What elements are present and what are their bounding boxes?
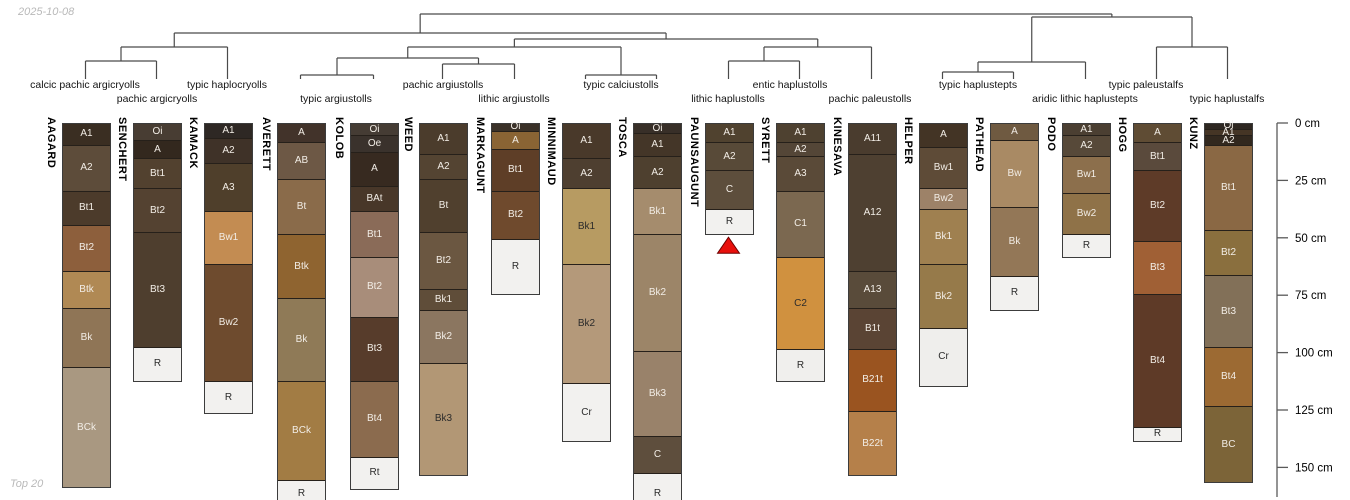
taxon-label: calcic pachic argicryolls (30, 79, 140, 91)
horizon-label: Bt3 (1221, 307, 1236, 317)
horizon-kinesava-b21t: B21t (849, 349, 896, 411)
taxon-label: pachic argiustolls (403, 79, 484, 91)
profile-column-hogg: ABt1Bt2Bt3Bt4R (1133, 123, 1182, 442)
profile-name-syrett: SYRETT (759, 117, 771, 163)
horizon-label: C1 (794, 219, 807, 229)
horizon-weed-bk2: Bk2 (420, 310, 467, 363)
depth-axis-tick-label: 25 cm (1295, 175, 1326, 187)
horizon-aagard-bck: BCk (63, 367, 110, 486)
horizon-aagard-a1: A1 (63, 124, 110, 145)
horizon-minnimaud-cr: Cr (563, 383, 610, 440)
profile-column-helper: ABw1Bw2Bk1Bk2Cr (919, 123, 968, 387)
profile-column-senchert: OiABt1Bt2Bt3R (133, 123, 182, 382)
horizon-markagunt-r: R (492, 239, 539, 294)
horizon-averett-a: A (278, 124, 325, 142)
horizon-kunz-bt4: Bt4 (1205, 347, 1252, 407)
profile-column-kamack: A1A2A3Bw1Bw2R (204, 123, 253, 414)
horizon-label: Cr (581, 408, 592, 418)
horizon-label: Bk3 (435, 414, 452, 424)
profile-name-minnimaud: MINNIMAUD (545, 117, 557, 186)
horizon-kolob-bt4: Bt4 (351, 381, 398, 457)
horizon-tosca-a1: A1 (634, 133, 681, 156)
horizon-label: A2 (794, 145, 806, 155)
horizon-label: Btk (79, 285, 93, 295)
profile-name-paunsaugunt: PAUNSAUGUNT (688, 117, 700, 207)
horizon-syrett-c2: C2 (777, 257, 824, 349)
horizon-label: Bt4 (367, 414, 382, 424)
profile-name-helper: HELPER (902, 117, 914, 165)
horizon-kamack-bw2: Bw2 (205, 264, 252, 381)
depth-axis-tick-label: 100 cm (1295, 348, 1333, 360)
horizon-minnimaud-a1: A1 (563, 124, 610, 158)
horizon-label: Rt (370, 468, 380, 478)
taxon-label: typic paleustalfs (1109, 79, 1184, 91)
horizon-label: A2 (222, 146, 234, 156)
taxon-label: typic haplustepts (939, 79, 1017, 91)
horizon-weed-bk1: Bk1 (420, 289, 467, 310)
taxon-label: entic haplustolls (753, 79, 828, 91)
horizon-label: A (298, 128, 305, 138)
horizon-kamack-r: R (205, 381, 252, 413)
horizon-tosca-c: C (634, 436, 681, 473)
horizon-label: Bt2 (367, 282, 382, 292)
horizon-label: Bk (81, 333, 93, 343)
profile-column-tosca: OiA1A2Bk1Bk2Bk3CR (633, 123, 682, 500)
horizon-weed-a1: A1 (420, 124, 467, 154)
horizon-paunsaugunt-a2: A2 (706, 142, 753, 170)
horizon-label: Bt2 (1150, 201, 1165, 211)
horizon-label: A2 (651, 168, 663, 178)
horizon-paunsaugunt-c: C (706, 170, 753, 209)
horizon-kunz-a2: A2 (1205, 135, 1252, 144)
horizon-averett-btk: Btk (278, 234, 325, 298)
horizon-label: Bk2 (649, 288, 666, 298)
horizon-podo-bw1: Bw1 (1063, 156, 1110, 193)
horizon-label: Bt2 (1221, 248, 1236, 258)
horizon-label: A (1154, 128, 1161, 138)
horizon-helper-bw2: Bw2 (920, 188, 967, 209)
horizon-label: A2 (723, 152, 735, 162)
horizon-label: Btk (294, 262, 308, 272)
horizon-label: Bt (297, 202, 306, 212)
horizon-label: Bw (1008, 169, 1022, 179)
horizon-kunz-bt2: Bt2 (1205, 230, 1252, 276)
horizon-label: A12 (864, 208, 882, 218)
horizon-paunsaugunt-a1: A1 (706, 124, 753, 142)
taxon-label: lithic argiustolls (478, 93, 549, 105)
horizon-label: Bt1 (79, 203, 94, 213)
horizon-tosca-a2: A2 (634, 156, 681, 188)
horizon-label: Bt1 (508, 165, 523, 175)
profile-name-senchert: SENCHERT (116, 117, 128, 182)
horizon-kunz-bt3: Bt3 (1205, 275, 1252, 346)
horizon-podo-a2: A2 (1063, 135, 1110, 156)
horizon-label: Bk1 (578, 222, 595, 232)
horizon-label: R (1083, 241, 1090, 251)
horizon-minnimaud-bk1: Bk1 (563, 188, 610, 264)
horizon-pathead-r: R (991, 276, 1038, 310)
profile-column-minnimaud: A1A2Bk1Bk2Cr (562, 123, 611, 442)
horizon-label: Bw2 (1077, 209, 1096, 219)
horizon-senchert-bt3: Bt3 (134, 232, 181, 347)
horizon-helper-cr: Cr (920, 328, 967, 385)
horizon-label: Bt1 (150, 169, 165, 179)
horizon-minnimaud-a2: A2 (563, 158, 610, 188)
horizon-kinesava-a13: A13 (849, 271, 896, 308)
profile-name-hogg: HOGG (1116, 117, 1128, 153)
profile-column-syrett: A1A2A3C1C2R (776, 123, 825, 382)
horizon-syrett-r: R (777, 349, 824, 381)
horizon-weed-bt: Bt (420, 179, 467, 232)
horizon-label: AB (295, 156, 308, 166)
horizon-label: Bt4 (1221, 372, 1236, 382)
horizon-label: A1 (651, 140, 663, 150)
horizon-averett-bt: Bt (278, 179, 325, 234)
profile-name-tosca: TOSCA (616, 117, 628, 158)
horizon-kinesava-b1t: B1t (849, 308, 896, 349)
horizon-kunz-bc: BC (1205, 406, 1252, 482)
horizon-kolob-bt3: Bt3 (351, 317, 398, 381)
horizon-label: BCk (292, 426, 311, 436)
horizon-label: A1 (1080, 125, 1092, 135)
horizon-label: A (1011, 127, 1018, 137)
horizon-label: Bk2 (435, 332, 452, 342)
horizon-label: B1t (865, 324, 880, 334)
horizon-helper-bk2: Bk2 (920, 264, 967, 328)
horizon-tosca-bk2: Bk2 (634, 234, 681, 351)
horizon-label: Bt2 (150, 206, 165, 216)
horizon-label: BAt (366, 194, 382, 204)
horizon-senchert-bt1: Bt1 (134, 158, 181, 188)
horizon-senchert-a: A (134, 140, 181, 158)
horizon-label: Oe (368, 139, 381, 149)
horizon-paunsaugunt-r: R (706, 209, 753, 234)
horizon-label: Oi (153, 127, 163, 137)
horizon-label: A (154, 145, 161, 155)
horizon-label: Bt2 (79, 243, 94, 253)
horizon-label: Bk1 (935, 232, 952, 242)
horizon-senchert-bt2: Bt2 (134, 188, 181, 232)
horizon-kolob-bt1: Bt1 (351, 211, 398, 257)
horizon-label: A1 (794, 128, 806, 138)
horizon-label: A (512, 136, 519, 146)
horizon-aagard-a2: A2 (63, 145, 110, 191)
profile-name-weed: WEED (402, 117, 414, 152)
horizon-label: A13 (864, 285, 882, 295)
horizon-label: Bt3 (150, 285, 165, 295)
horizon-kolob-a: A (351, 152, 398, 186)
horizon-pathead-bk: Bk (991, 207, 1038, 276)
depth-axis-tick-label: 125 cm (1295, 405, 1333, 417)
horizon-podo-a1: A1 (1063, 124, 1110, 135)
horizon-label: Bt1 (1150, 152, 1165, 162)
horizon-label: B21t (862, 375, 883, 385)
horizon-label: B22t (862, 439, 883, 449)
horizon-label: Bk (296, 335, 308, 345)
horizon-kunz-bt1: Bt1 (1205, 145, 1252, 230)
horizon-label: Bw2 (934, 194, 953, 204)
horizon-tosca-oi: Oi (634, 124, 681, 133)
profile-name-podo: PODO (1045, 117, 1057, 151)
horizon-label: A1 (580, 136, 592, 146)
horizon-label: Bw1 (934, 163, 953, 173)
horizon-averett-bck: BCk (278, 381, 325, 480)
horizon-label: Bk (1009, 237, 1021, 247)
horizon-label: Bw1 (219, 233, 238, 243)
horizon-hogg-r: R (1134, 427, 1181, 441)
horizon-kamack-a1: A1 (205, 124, 252, 138)
horizon-label: A1 (222, 126, 234, 136)
profile-column-markagunt: OiABt1Bt2R (491, 123, 540, 295)
horizon-kolob-bat: BAt (351, 186, 398, 211)
profile-column-aagard: A1A2Bt1Bt2BtkBkBCk (62, 123, 111, 488)
depth-axis-tick-label: 150 cm (1295, 462, 1333, 474)
taxon-label: typic haplocryolls (187, 79, 267, 91)
horizon-label: Cr (938, 352, 949, 362)
depth-axis-tick-label: 50 cm (1295, 233, 1326, 245)
horizon-label: A2 (1080, 141, 1092, 151)
horizon-aagard-bt2: Bt2 (63, 225, 110, 271)
horizon-syrett-c1: C1 (777, 191, 824, 258)
horizon-label: R (512, 262, 519, 272)
horizon-label: A (371, 164, 378, 174)
horizon-kinesava-a11: A11 (849, 124, 896, 154)
horizon-aagard-bt1: Bt1 (63, 191, 110, 225)
horizon-label: A2 (437, 162, 449, 172)
horizon-label: Bk1 (435, 295, 452, 305)
horizon-label: Bt2 (436, 256, 451, 266)
horizon-label: A3 (794, 169, 806, 179)
horizon-kinesava-a12: A12 (849, 154, 896, 271)
horizon-weed-a2: A2 (420, 154, 467, 179)
horizon-podo-r: R (1063, 234, 1110, 257)
horizon-label: A1 (437, 134, 449, 144)
horizon-kamack-a3: A3 (205, 163, 252, 211)
horizon-label: R (1154, 429, 1161, 439)
profile-column-kolob: OiOeABAtBt1Bt2Bt3Bt4Rt (350, 123, 399, 490)
horizon-label: A3 (222, 183, 234, 193)
profile-name-averett: AVERETT (260, 117, 272, 171)
taxon-label: lithic haplustolls (691, 93, 765, 105)
profile-name-kinesava: KINESAVA (831, 117, 843, 176)
horizon-hogg-bt2: Bt2 (1134, 170, 1181, 241)
horizon-label: Bt1 (367, 230, 382, 240)
horizon-label: C (654, 450, 661, 460)
horizon-hogg-a: A (1134, 124, 1181, 142)
horizon-label: Bw1 (1077, 170, 1096, 180)
horizon-kamack-bw1: Bw1 (205, 211, 252, 264)
horizon-label: BCk (77, 423, 96, 433)
horizon-markagunt-bt1: Bt1 (492, 149, 539, 190)
horizon-label: Bt1 (1221, 183, 1236, 193)
horizon-label: Bk2 (578, 319, 595, 329)
horizon-pathead-a: A (991, 124, 1038, 140)
horizon-label: R (154, 359, 161, 369)
horizon-aagard-btk: Btk (63, 271, 110, 308)
profile-column-paunsaugunt: A1A2CR (705, 123, 754, 235)
taxon-label: pachic argicryolls (117, 93, 198, 105)
taxon-label: typic haplustalfs (1190, 93, 1265, 105)
horizon-label: A11 (864, 134, 881, 144)
horizon-averett-ab: AB (278, 142, 325, 179)
horizon-syrett-a1: A1 (777, 124, 824, 142)
horizon-label: Oi (653, 124, 663, 134)
horizon-label: C (726, 185, 733, 195)
horizon-kinesava-b22t: B22t (849, 411, 896, 475)
horizon-tosca-r: R (634, 473, 681, 500)
horizon-senchert-r: R (134, 347, 181, 381)
horizon-kolob-oi: Oi (351, 124, 398, 135)
horizon-label: Bt3 (367, 344, 382, 354)
profile-column-kunz: OiA1A2Bt1Bt2Bt3Bt4BC (1204, 123, 1253, 483)
depth-axis-tick-label: 0 cm (1295, 118, 1320, 130)
horizon-label: R (1011, 288, 1018, 298)
profile-name-kunz: KUNZ (1187, 117, 1199, 150)
horizon-tosca-bk1: Bk1 (634, 188, 681, 234)
taxon-label: typic calciustolls (583, 79, 658, 91)
horizon-hogg-bt4: Bt4 (1134, 294, 1181, 427)
horizon-label: Oi (370, 125, 380, 135)
horizon-label: A2 (80, 163, 92, 173)
horizon-label: Bk3 (649, 389, 666, 399)
horizon-label: BC (1222, 440, 1236, 450)
horizon-pathead-bw: Bw (991, 140, 1038, 207)
horizon-label: R (298, 489, 305, 499)
horizon-label: Bt2 (508, 210, 523, 220)
horizon-kolob-oe: Oe (351, 135, 398, 151)
horizon-weed-bk3: Bk3 (420, 363, 467, 476)
horizon-kolob-bt2: Bt2 (351, 257, 398, 317)
horizon-label: A1 (723, 128, 735, 138)
horizon-averett-r: R (278, 480, 325, 500)
horizon-helper-a: A (920, 124, 967, 147)
horizon-tosca-bk3: Bk3 (634, 351, 681, 436)
footer-label: Top 20 (10, 478, 43, 490)
horizon-markagunt-oi: Oi (492, 124, 539, 131)
missing-data-triangle-marker (718, 237, 740, 253)
profile-column-pathead: ABwBkR (990, 123, 1039, 311)
horizon-averett-bk: Bk (278, 298, 325, 381)
horizon-label: R (797, 361, 804, 371)
horizon-hogg-bt1: Bt1 (1134, 142, 1181, 170)
horizon-label: Bw2 (219, 318, 238, 328)
horizon-minnimaud-bk2: Bk2 (563, 264, 610, 383)
profile-name-pathead: PATHEAD (973, 117, 985, 172)
horizon-syrett-a2: A2 (777, 142, 824, 156)
profile-name-aagard: AAGARD (45, 117, 57, 168)
horizon-label: A1 (80, 129, 92, 139)
horizon-label: Bk2 (935, 292, 952, 302)
taxon-label: pachic paleustolls (829, 93, 912, 105)
horizon-label: R (726, 217, 733, 227)
horizon-label: A2 (580, 169, 592, 179)
profile-name-kamack: KAMACK (187, 117, 199, 169)
profile-name-markagunt: MARKAGUNT (474, 117, 486, 194)
horizon-markagunt-bt2: Bt2 (492, 191, 539, 239)
taxon-label: typic argiustolls (300, 93, 372, 105)
depth-axis-tick-label: 75 cm (1295, 290, 1326, 302)
horizon-helper-bk1: Bk1 (920, 209, 967, 264)
horizon-label: A (940, 130, 947, 140)
horizon-aagard-bk: Bk (63, 308, 110, 368)
profile-column-kinesava: A11A12A13B1tB21tB22t (848, 123, 897, 476)
profile-column-weed: A1A2BtBt2Bk1Bk2Bk3 (419, 123, 468, 476)
profile-column-podo: A1A2Bw1Bw2R (1062, 123, 1111, 258)
horizon-label: Bt4 (1150, 356, 1165, 366)
horizon-label: Bt (439, 201, 448, 211)
horizon-senchert-oi: Oi (134, 124, 181, 140)
horizon-label: R (225, 393, 232, 403)
horizon-hogg-bt3: Bt3 (1134, 241, 1181, 294)
horizon-podo-bw2: Bw2 (1063, 193, 1110, 234)
horizon-kolob-rt: Rt (351, 457, 398, 489)
horizon-kamack-a2: A2 (205, 138, 252, 163)
horizon-label: R (654, 489, 661, 499)
profile-name-kolob: KOLOB (333, 117, 345, 159)
horizon-weed-bt2: Bt2 (420, 232, 467, 289)
taxon-label: aridic lithic haplustepts (1032, 93, 1138, 105)
horizon-syrett-a3: A3 (777, 156, 824, 190)
horizon-helper-bw1: Bw1 (920, 147, 967, 188)
horizon-label: Bt3 (1150, 263, 1165, 273)
horizon-label: C2 (794, 299, 807, 309)
profile-column-averett: AABBtBtkBkBCkR (277, 123, 326, 500)
soil-dendrogram-figure: 2025-10-08 0 cm25 cm50 cm75 cm100 cm125 … (0, 0, 1350, 500)
horizon-label: Bk1 (649, 207, 666, 217)
horizon-markagunt-a: A (492, 131, 539, 149)
